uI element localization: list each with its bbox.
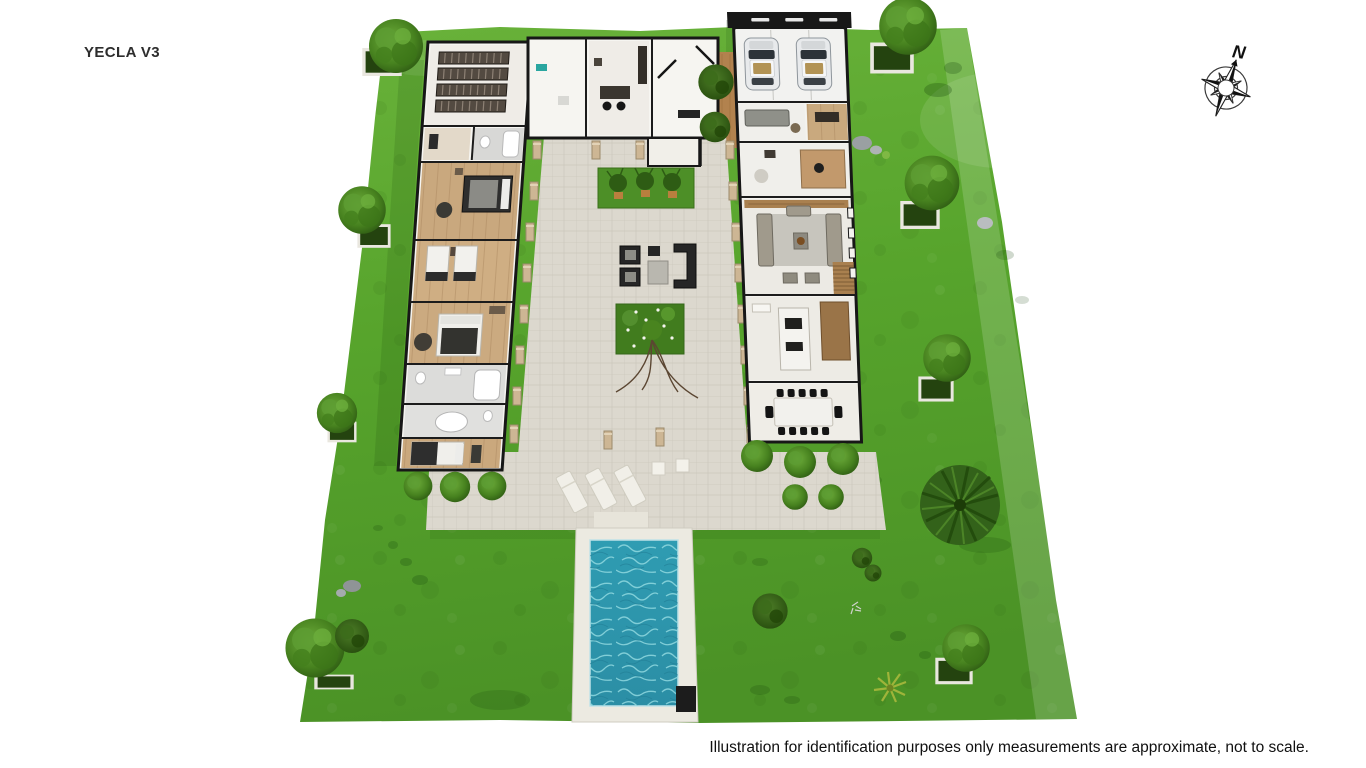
- entry-porch: [648, 138, 700, 166]
- garage: [736, 29, 847, 101]
- hall-fixture: [536, 64, 547, 71]
- compass-rose-icon: N: [1191, 41, 1260, 125]
- pool-water: [590, 540, 678, 706]
- study-room: [740, 144, 850, 196]
- page-title: YECLA V3: [84, 44, 160, 61]
- swimming-pool: [572, 512, 698, 722]
- pool-step-block: [676, 686, 696, 712]
- pool-pad: [594, 512, 648, 528]
- page: N YECLA V3 Illustration for identificati…: [0, 0, 1366, 768]
- dining-room: [749, 384, 859, 440]
- kitchen-island: [778, 308, 810, 370]
- site-plan-illustration: N: [0, 0, 1366, 768]
- tree-icon: [369, 19, 423, 73]
- pergola-column-icon: [533, 141, 541, 159]
- right-wing: [727, 12, 868, 442]
- north-label: N: [1231, 41, 1248, 63]
- disclaimer-text: Illustration for identification purposes…: [709, 739, 1309, 757]
- car-icon: [796, 38, 832, 90]
- car-icon: [744, 38, 780, 90]
- living-room: [742, 199, 857, 295]
- palm-tree-icon: [920, 465, 1000, 545]
- utility-room: [739, 104, 848, 140]
- bush-icon: [404, 472, 433, 501]
- office: [589, 41, 649, 135]
- tree-icon: [698, 64, 733, 99]
- kitchen: [746, 297, 857, 380]
- kitchen-cabinets: [820, 302, 850, 360]
- courtyard-planter: [598, 168, 694, 208]
